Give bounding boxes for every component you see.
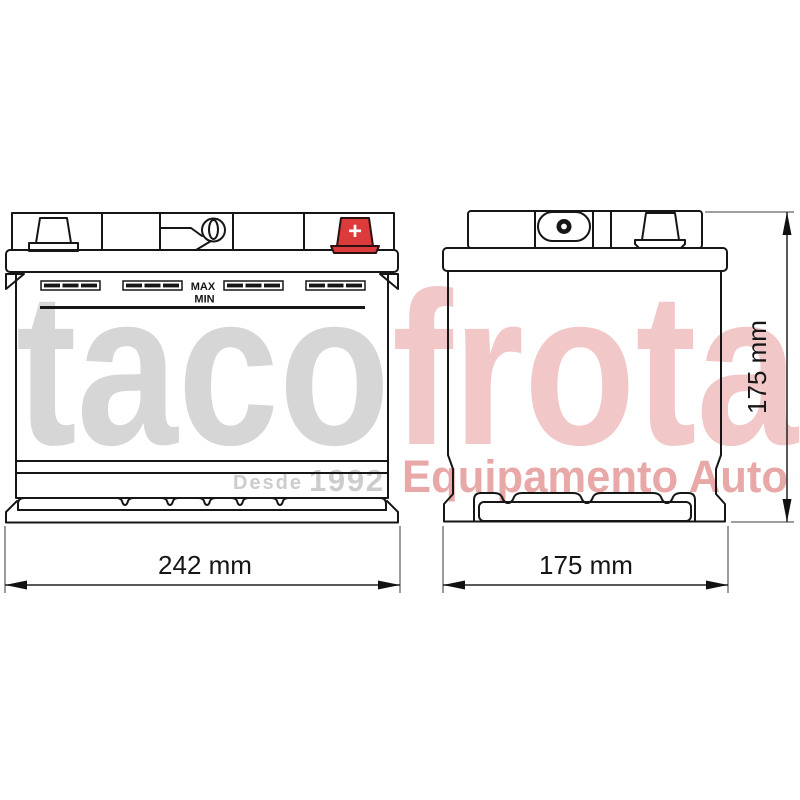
watermark-since-label: Desde <box>233 472 301 494</box>
battery-dimensions-diagram: taco frota Desde 1992 Equipamento Auto <box>0 0 800 800</box>
positive-terminal-base <box>331 246 379 253</box>
plus-icon: + <box>348 218 362 245</box>
watermark-since-year: 1992 <box>309 463 383 498</box>
side-height-label: 175 mm <box>742 320 772 414</box>
max-label: MAX <box>191 281 216 293</box>
front-width-label: 242 mm <box>158 550 252 580</box>
min-label: MIN <box>194 294 214 306</box>
diagram-canvas: taco frota Desde 1992 Equipamento Auto <box>0 0 800 800</box>
side-width-label: 175 mm <box>539 550 633 580</box>
